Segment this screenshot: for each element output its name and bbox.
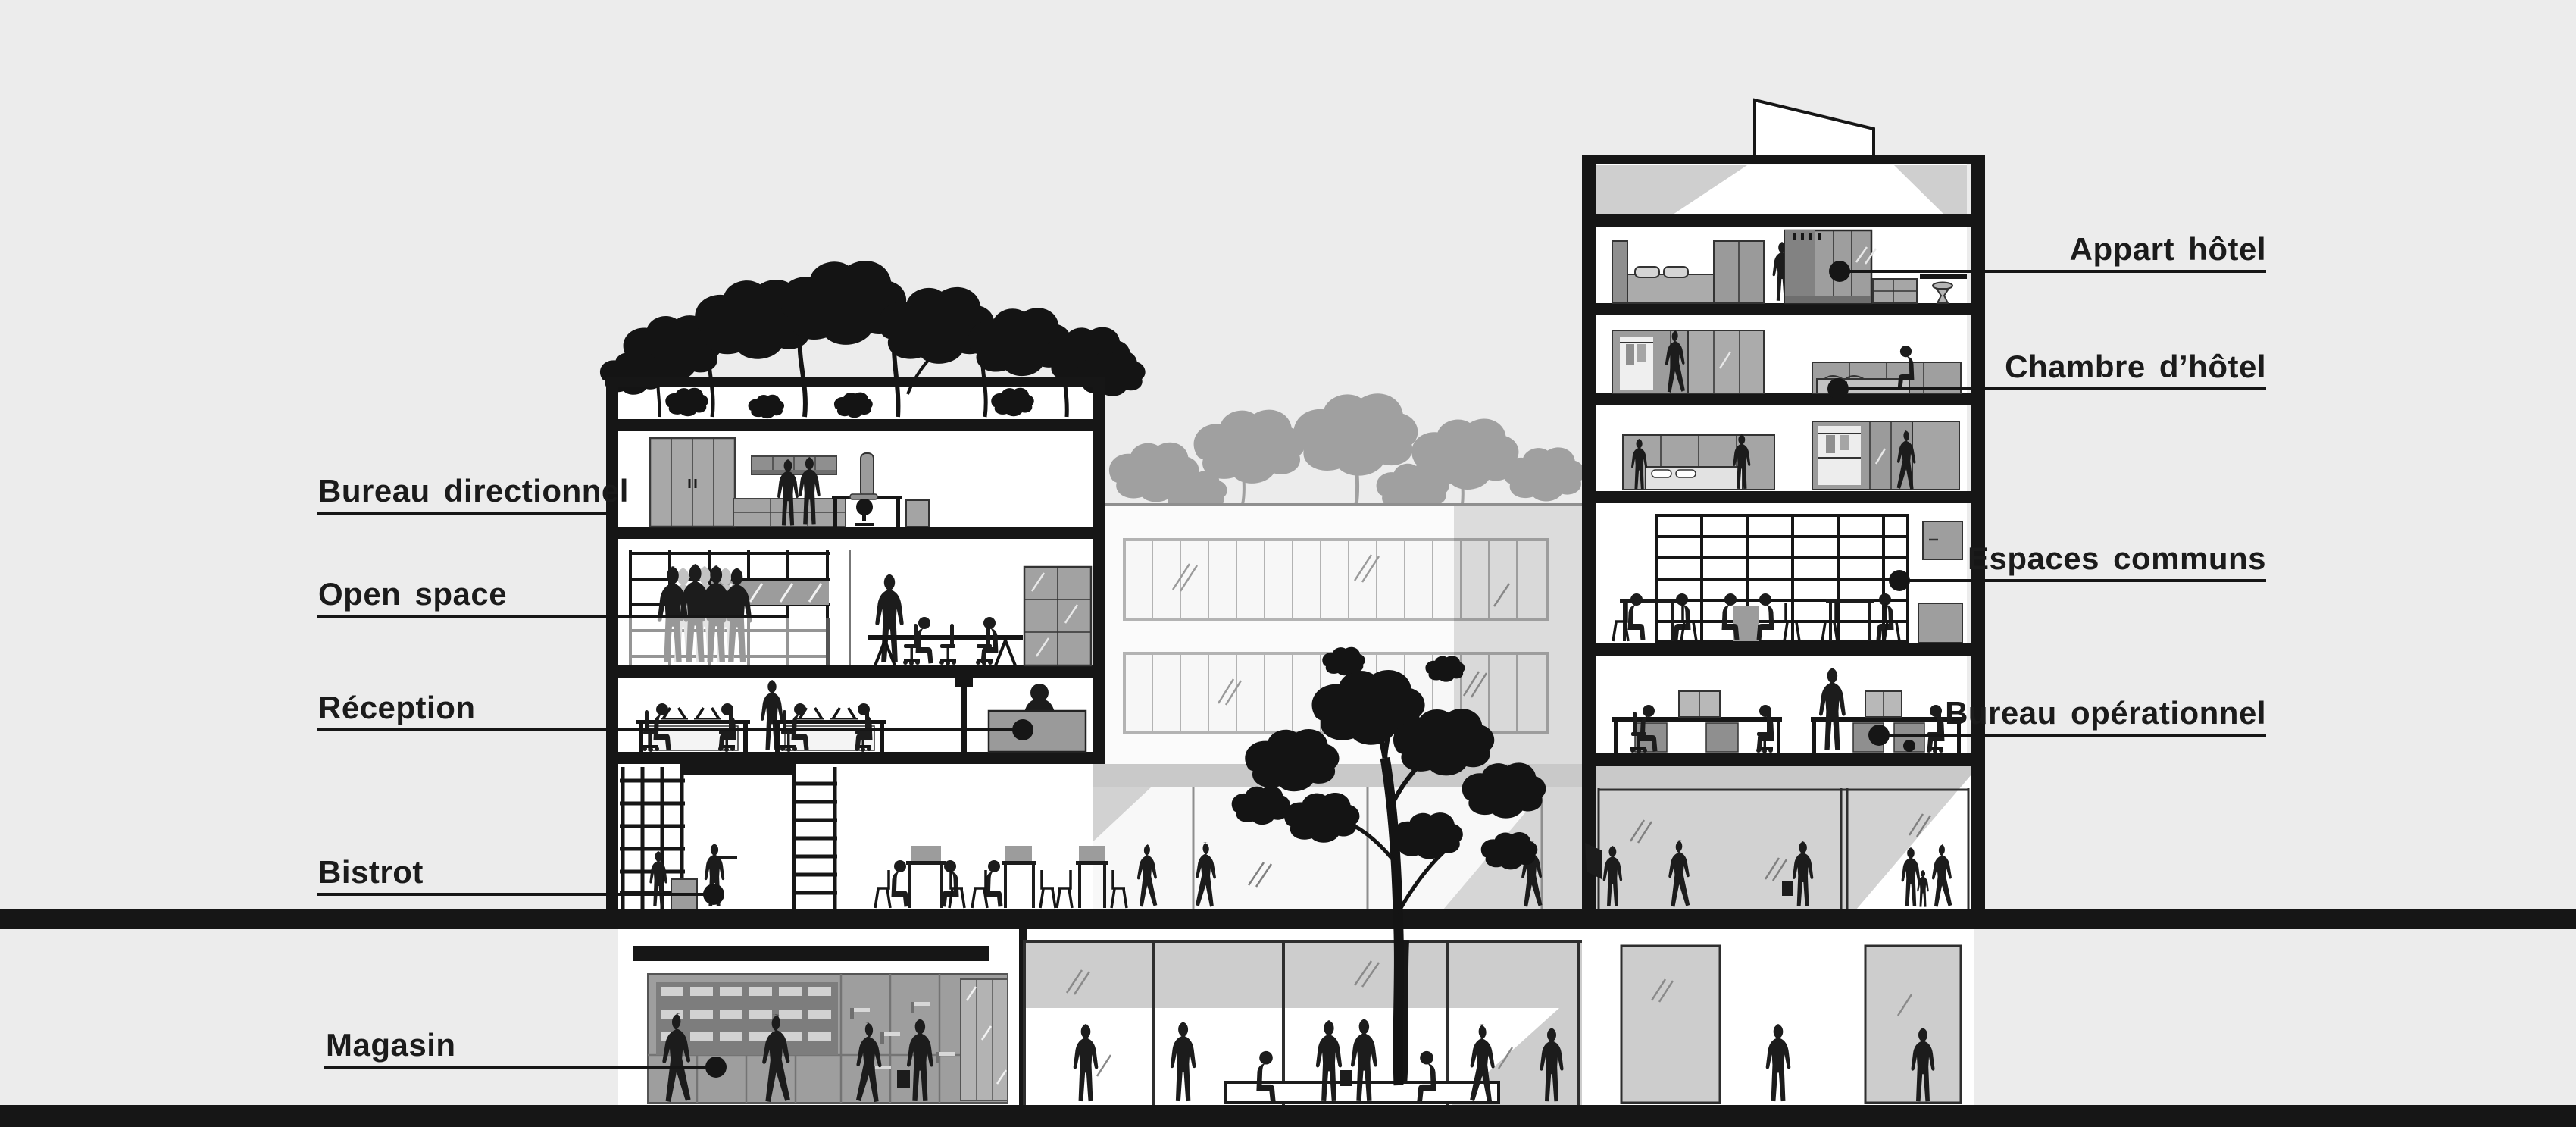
leader-dot bbox=[1012, 719, 1033, 740]
magasin bbox=[633, 929, 1027, 1105]
callout-label: Appart hôtel bbox=[2070, 231, 2266, 267]
floor-slab bbox=[606, 752, 1105, 764]
callout-label: Magasin bbox=[326, 1027, 456, 1063]
leader-dot bbox=[1827, 378, 1849, 399]
tower-slab bbox=[1582, 303, 1985, 315]
tower-slab bbox=[1582, 393, 1985, 405]
leader-dot bbox=[1889, 570, 1910, 591]
callout-label: Réception bbox=[318, 690, 476, 725]
floor-slab bbox=[606, 665, 1105, 678]
callout-label: Bureau directionnel bbox=[318, 473, 629, 509]
ghost-table bbox=[629, 618, 827, 665]
tower-parapet bbox=[1582, 155, 1985, 164]
callout-bureau-directionnel: Bureau directionnel bbox=[317, 473, 629, 513]
ground-line bbox=[0, 909, 2576, 929]
base-line bbox=[0, 1105, 2576, 1127]
executive-chair bbox=[861, 453, 874, 497]
glass-bookcase bbox=[1024, 567, 1091, 665]
callout-label: Bistrot bbox=[318, 854, 424, 890]
tower-slab bbox=[1582, 491, 1985, 503]
tower-slab bbox=[1582, 753, 1985, 766]
glass-partition bbox=[849, 550, 851, 665]
tower-slab bbox=[1582, 214, 1985, 227]
leader-dot bbox=[1868, 725, 1890, 746]
callout-label: Bureau opérationnel bbox=[1945, 695, 2266, 731]
floor-slab bbox=[606, 527, 1105, 539]
leader-dot bbox=[705, 1057, 727, 1078]
partition-column bbox=[961, 678, 967, 752]
leader-dot bbox=[703, 884, 724, 905]
architectural-section: Bureau directionnelOpen spaceRéceptionBi… bbox=[0, 0, 2576, 1127]
tower-slab bbox=[1582, 643, 1985, 656]
basement-level bbox=[618, 929, 1974, 1105]
bed bbox=[1627, 274, 1714, 303]
magasin-signboard bbox=[633, 946, 989, 961]
leader-dot bbox=[1829, 261, 1850, 282]
section-drawing: Bureau directionnelOpen spaceRéceptionBi… bbox=[0, 0, 2576, 1127]
tower-left-wall bbox=[1582, 155, 1596, 929]
tower-storefront bbox=[1585, 766, 1971, 909]
right-tower bbox=[1582, 100, 1985, 929]
callout-label: Espaces communs bbox=[1968, 540, 2266, 576]
side-cabinet bbox=[906, 500, 929, 527]
callout-label: Open space bbox=[318, 576, 507, 612]
callout-label: Chambre d’hôtel bbox=[2005, 349, 2266, 384]
parapet bbox=[606, 377, 1105, 387]
left-wall bbox=[606, 377, 618, 929]
right-wall bbox=[1093, 377, 1105, 764]
roof-slab bbox=[606, 419, 1105, 431]
